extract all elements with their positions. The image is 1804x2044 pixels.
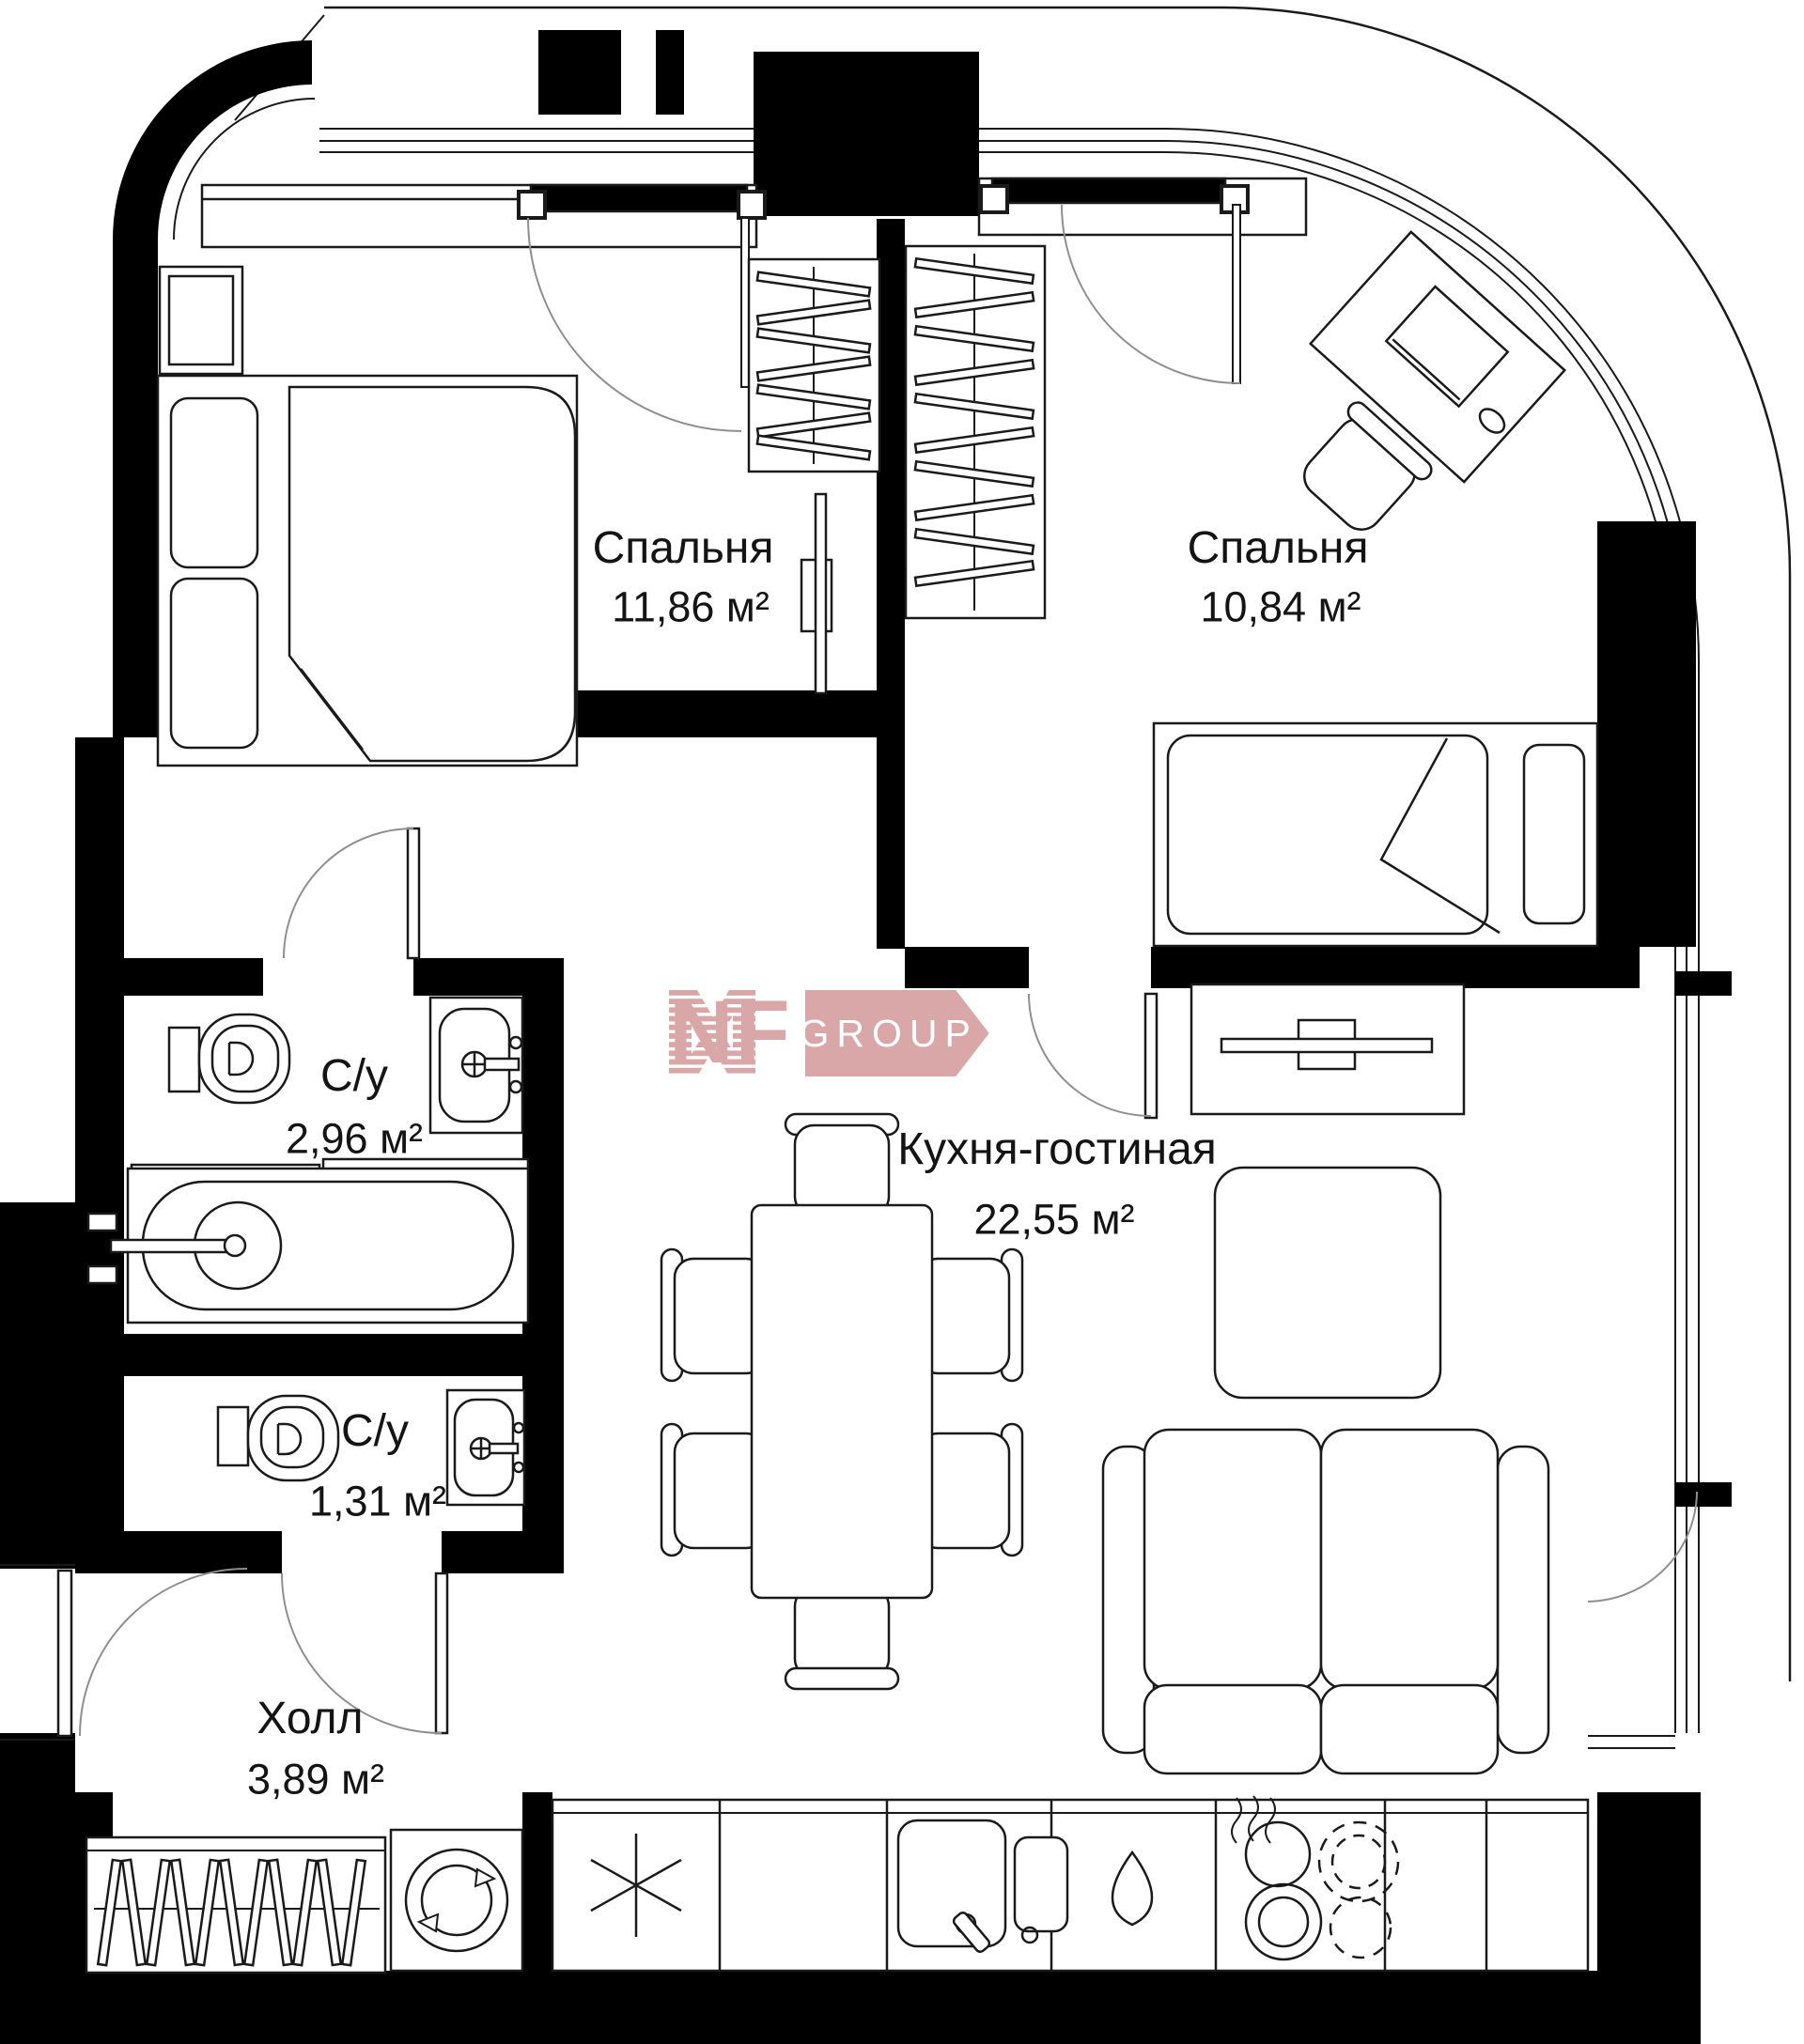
watermark-suffix: GROUP — [799, 1012, 977, 1056]
bedroom1-tv-icon — [801, 494, 832, 693]
bathroom-2-label: С/у — [341, 1409, 409, 1454]
sofa-icon — [1103, 1430, 1548, 1773]
watermark-logo: NF GROUP — [669, 990, 989, 1076]
bedroom2-single-bed-icon — [1154, 723, 1597, 946]
bedroom-2-label: Спальня — [1188, 526, 1369, 571]
sink-icon — [447, 1390, 524, 1505]
kitchen-living-label: Кухня-гостиная — [897, 1127, 1217, 1172]
bedroom-2-area: 10,84 м² — [1200, 586, 1361, 628]
rug-icon — [1215, 1168, 1440, 1398]
hall-area: 3,89 м² — [247, 1758, 384, 1801]
bedroom1-double-bed-icon — [158, 267, 577, 766]
kitchen-cabinets — [552, 1796, 1588, 1971]
washing-machine-icon — [391, 1830, 522, 1971]
bathroom-1-label: С/у — [320, 1054, 388, 1099]
sink-icon — [430, 998, 522, 1133]
bedroom2-desk-icon — [1290, 232, 1564, 543]
floorplan: Спальня 11,86 м² Спальня 10,84 м² С/у 2,… — [0, 0, 1804, 2044]
wardrobe-hangers-icon — [749, 259, 879, 472]
hall-label: Холл — [257, 1696, 363, 1742]
nf-stripes-icon — [669, 990, 755, 1076]
bathroom-2-area: 1,31 м² — [309, 1480, 446, 1523]
bathroom-1-area: 2,96 м² — [286, 1118, 423, 1160]
bedroom-1-label: Спальня — [593, 526, 774, 571]
hall-wardrobe-hangers-icon — [86, 1837, 385, 1973]
wardrobe-hangers-icon — [906, 246, 1045, 618]
watermark-banner: GROUP — [805, 990, 989, 1076]
dining-table-icon — [661, 1114, 1022, 1689]
kitchen-living-area: 22,55 м² — [973, 1199, 1134, 1241]
bathtub-icon — [88, 1159, 528, 1323]
toilet-icon — [218, 1396, 338, 1480]
toilet-icon — [169, 1014, 289, 1103]
bedroom-1-area: 11,86 м² — [612, 586, 770, 628]
tv-console-icon — [1191, 984, 1464, 1114]
